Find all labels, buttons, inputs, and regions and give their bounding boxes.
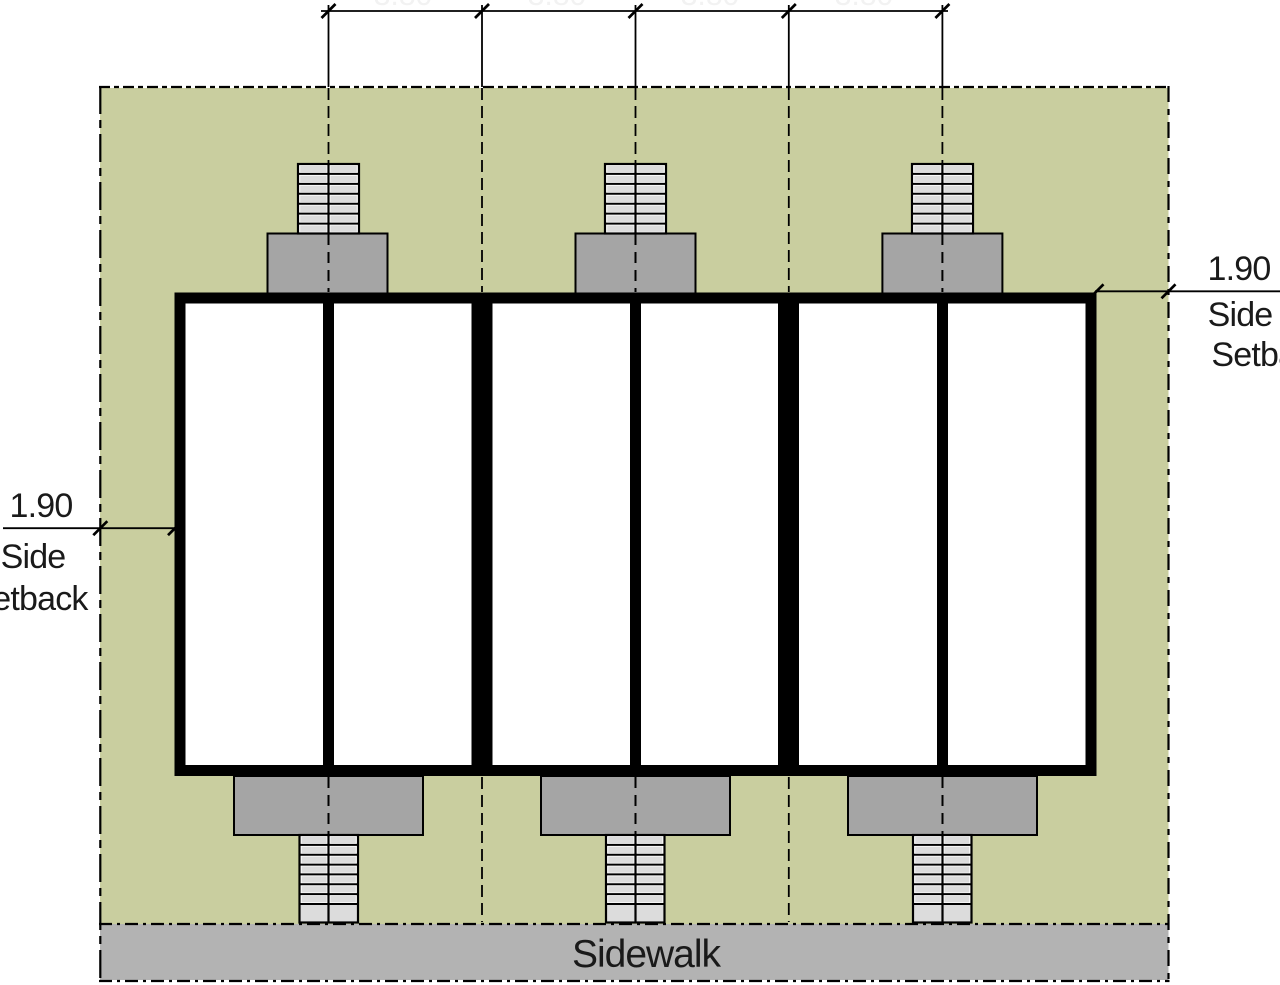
svg-text:1.90: 1.90 [10,487,73,525]
svg-text:Side: Side [1208,296,1273,334]
svg-text:Sidewalk: Sidewalk [572,933,722,976]
svg-text:3.80: 3.80 [528,0,586,12]
svg-text:3.80: 3.80 [835,0,893,12]
svg-text:1.90: 1.90 [1208,250,1271,288]
svg-text:Side: Side [1,538,66,576]
svg-text:Setback: Setback [0,580,89,618]
svg-text:3.80: 3.80 [374,0,432,12]
svg-text:Setback: Setback [1211,336,1280,374]
svg-text:3.80: 3.80 [681,0,739,12]
